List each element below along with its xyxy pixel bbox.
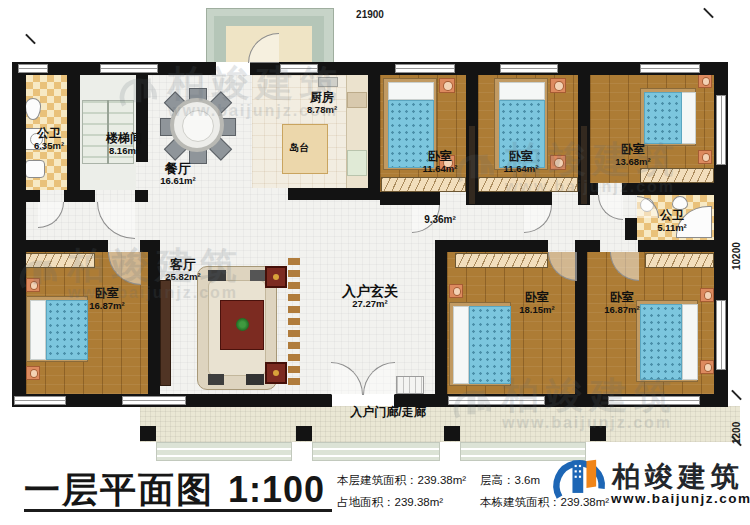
stat-floor-area: 本层建筑面积：239.38m²	[337, 470, 466, 491]
room-area: 13.68m²	[615, 156, 650, 167]
wall	[380, 192, 440, 205]
dimension-tick	[25, 34, 36, 45]
plan-scale: 1:100	[228, 469, 325, 510]
room-area: 18.15m²	[519, 304, 554, 315]
sofa-cushion	[246, 374, 264, 385]
stat-value: 3.6m	[515, 474, 541, 486]
room-area: 16.61m²	[160, 175, 195, 186]
nightstand	[698, 150, 712, 164]
brand-logo-icon	[550, 452, 610, 508]
room-label-bedroom-top3: 卧室 13.68m²	[615, 143, 650, 167]
window	[716, 95, 726, 165]
stat-storey-height: 层高：3.6m	[480, 470, 540, 491]
stat-value: 239.38m²	[418, 474, 467, 486]
room-label-kitchen: 厨房 8.78m²	[307, 91, 337, 115]
room-name: 卧室	[89, 287, 124, 300]
door-leaf	[469, 126, 475, 204]
room-label-bath2: 公卫 5.11m²	[657, 209, 687, 233]
title-underline	[24, 509, 332, 512]
room-name: 卧室	[519, 291, 554, 304]
room-area: 6.35m²	[34, 140, 64, 151]
window	[18, 64, 48, 73]
bed-pillows	[453, 306, 469, 384]
armchair-detail	[273, 274, 279, 280]
nightstand	[26, 366, 40, 380]
bed-quilt	[640, 304, 682, 380]
room-name: 厨房	[307, 91, 337, 104]
wall	[288, 188, 380, 200]
room-name: 入户门廊/走廊	[350, 406, 425, 419]
window	[280, 64, 318, 73]
window	[500, 64, 558, 73]
wardrobe	[381, 177, 466, 192]
room-name: 岛台	[289, 141, 309, 154]
sink	[25, 160, 45, 178]
nightstand	[449, 284, 463, 298]
dining-table-center	[182, 110, 214, 142]
room-label-living: 客厅 25.82m²	[165, 258, 200, 282]
floor-plan-page: 21900 10200 1200	[0, 0, 750, 525]
shoe-cabinet	[396, 376, 424, 394]
wall	[12, 62, 26, 407]
bed	[449, 302, 511, 386]
kitchen-sink	[347, 150, 367, 176]
wall	[12, 240, 108, 252]
stat-value: 239.38m²	[395, 496, 444, 508]
room-area: 16.87m²	[604, 304, 639, 315]
room-area: 16.87m²	[89, 300, 124, 311]
nightstand	[550, 155, 566, 170]
room-label-island: 岛台	[289, 141, 309, 154]
dining-set	[159, 87, 235, 163]
wall	[135, 190, 148, 202]
wall	[590, 183, 598, 195]
wall	[478, 192, 552, 205]
room-name: 公卫	[657, 209, 687, 222]
nightstand	[439, 78, 455, 93]
wardrobe	[640, 168, 714, 183]
brand-url: www.baijunjz.com	[611, 491, 750, 506]
window	[14, 396, 66, 405]
wardrobe	[645, 253, 714, 268]
plan-title: 一层平面图1:100	[24, 466, 325, 515]
room-label-hallway: 9.36m²	[424, 214, 456, 225]
room-area: 9.36m²	[424, 214, 456, 225]
window	[122, 396, 186, 405]
room-area: 8.16m²	[106, 145, 142, 156]
wall	[625, 218, 637, 240]
bed-pillows	[680, 92, 696, 144]
porch-floor	[140, 406, 740, 442]
porch-column	[444, 426, 460, 441]
slat-partition	[288, 258, 300, 390]
wardrobe	[22, 253, 95, 268]
armchair-detail	[273, 370, 279, 376]
room-label-porch: 入户门廊/走廊	[350, 406, 425, 419]
room-name: 客厅	[165, 258, 200, 271]
wall	[435, 240, 447, 394]
room-label-foyer: 入户玄关 27.27m²	[342, 285, 398, 309]
stat-label: 层高：	[480, 474, 515, 486]
room-label-dining: 餐厅 16.61m²	[160, 162, 195, 186]
room-label-bedroom-top1: 卧室 11.64m²	[423, 150, 458, 174]
bed-quilt	[46, 300, 88, 360]
room-label-bath1: 公卫 6.35m²	[34, 127, 64, 151]
wall	[587, 240, 600, 252]
room-area: 25.82m²	[165, 271, 200, 282]
dimension-right-main: 10200	[731, 200, 742, 270]
door-leaf	[581, 126, 587, 204]
bed-pillows	[388, 82, 434, 100]
wall	[625, 183, 637, 195]
bed-pillows	[499, 82, 545, 100]
sofa-cushion	[208, 374, 224, 385]
stat-label: 占地面积：	[337, 496, 395, 508]
nightstand	[700, 360, 714, 374]
range-hood	[318, 77, 338, 87]
stat-label: 本层建筑面积：	[337, 474, 418, 486]
sofa-cushion	[208, 270, 226, 281]
nightstand	[550, 78, 566, 93]
room-name: 公卫	[34, 127, 64, 140]
bed-pillows	[682, 304, 698, 380]
nightstand	[700, 288, 714, 302]
window	[608, 396, 700, 405]
wardrobe	[478, 177, 578, 192]
room-label-bedroom-bottom2: 卧室 16.87m²	[604, 291, 639, 315]
entry-steps	[156, 442, 292, 461]
wall	[64, 190, 95, 202]
window	[716, 300, 726, 370]
room-label-bedroom-top2: 卧室 11.64m²	[504, 150, 539, 174]
room-name: 卧室	[615, 143, 650, 156]
bed-quilt	[469, 306, 511, 384]
bed-quilt	[644, 92, 682, 144]
room-label-stairwell: 楼梯间 8.16m²	[106, 132, 142, 156]
room-name: 餐厅	[160, 162, 195, 175]
window	[100, 64, 158, 73]
kitchen-appliance	[347, 92, 367, 108]
back-door-opening	[216, 62, 250, 75]
wall	[148, 240, 160, 394]
plant	[236, 318, 249, 331]
wall	[12, 190, 40, 202]
wall	[67, 75, 80, 190]
room-area: 11.64m²	[504, 163, 539, 174]
window	[395, 64, 455, 73]
stat-ground-area: 占地面积：239.38m²	[337, 492, 443, 513]
tv-cabinet	[160, 280, 171, 386]
room-name: 卧室	[504, 150, 539, 163]
dimension-top: 21900	[330, 9, 410, 20]
room-area: 11.64m²	[423, 163, 458, 174]
wall	[638, 240, 728, 252]
room-name: 卧室	[604, 291, 639, 304]
wardrobe	[455, 253, 548, 268]
stat-label: 本栋建筑面积：	[480, 496, 561, 508]
window	[640, 64, 700, 73]
dimension-tick	[703, 8, 714, 19]
bed	[640, 88, 696, 146]
bed	[26, 296, 88, 362]
room-label-bedroom-left: 卧室 16.87m²	[89, 287, 124, 311]
room-name: 楼梯间	[106, 132, 142, 145]
wall	[435, 240, 548, 252]
nightstand	[698, 74, 712, 88]
room-area: 27.27m²	[342, 298, 398, 309]
room-label-bedroom-bottom1: 卧室 18.15m²	[519, 291, 554, 315]
plan-title-text: 一层平面图	[24, 469, 214, 510]
room-name: 卧室	[423, 150, 458, 163]
bed-pillows	[30, 300, 46, 360]
window	[448, 396, 545, 405]
porch-column	[296, 426, 312, 441]
bed	[636, 300, 698, 382]
porch-column	[140, 426, 156, 441]
room-area: 5.11m²	[657, 222, 687, 233]
entry-steps	[312, 442, 440, 461]
nightstand	[26, 278, 40, 292]
sofa-cushion	[250, 270, 266, 281]
room-name: 入户玄关	[342, 285, 398, 298]
porch-column	[590, 426, 606, 441]
wall	[368, 62, 380, 200]
room-area: 8.78m²	[307, 104, 337, 115]
